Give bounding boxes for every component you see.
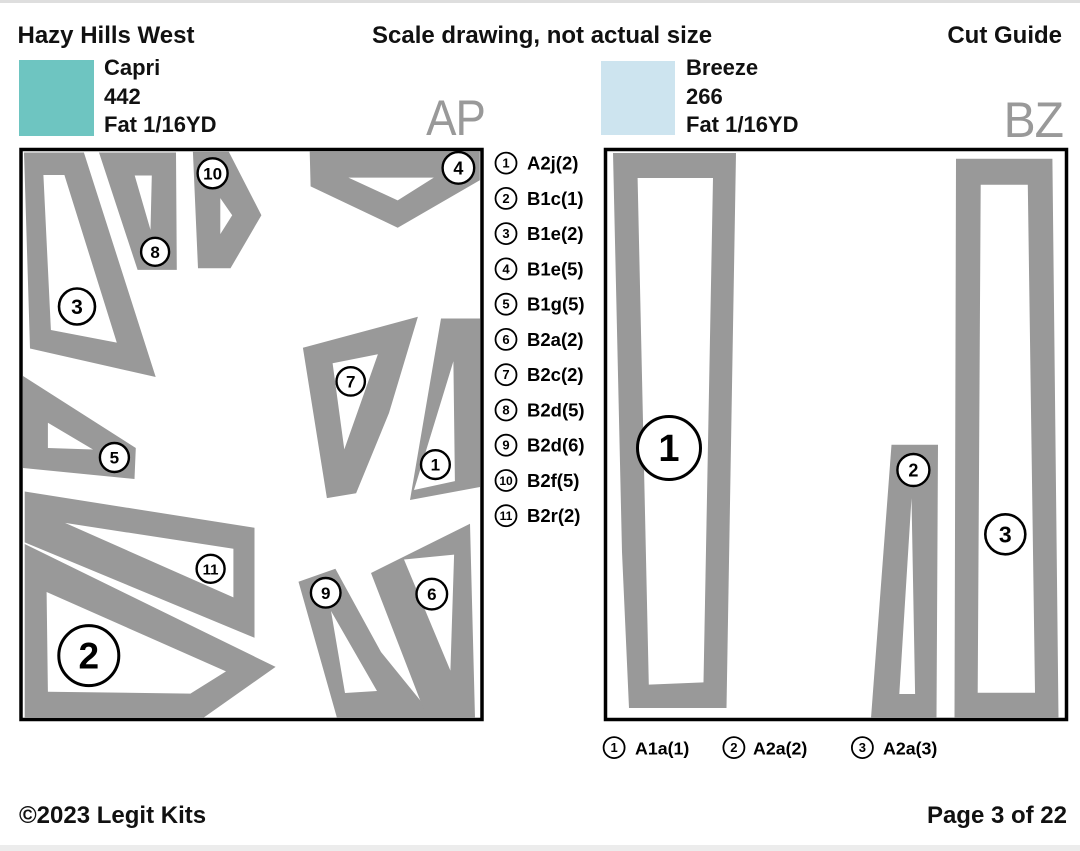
svg-text:1: 1 <box>658 428 679 470</box>
svg-text:2: 2 <box>908 461 918 481</box>
svg-text:2: 2 <box>730 740 737 755</box>
svg-text:3: 3 <box>999 521 1012 547</box>
svg-text:3: 3 <box>859 740 866 755</box>
svg-text:A1a(1): A1a(1) <box>635 739 689 759</box>
svg-text:A2a(3): A2a(3) <box>883 739 937 759</box>
svg-text:1: 1 <box>610 740 617 755</box>
svg-text:A2a(2): A2a(2) <box>753 739 807 759</box>
